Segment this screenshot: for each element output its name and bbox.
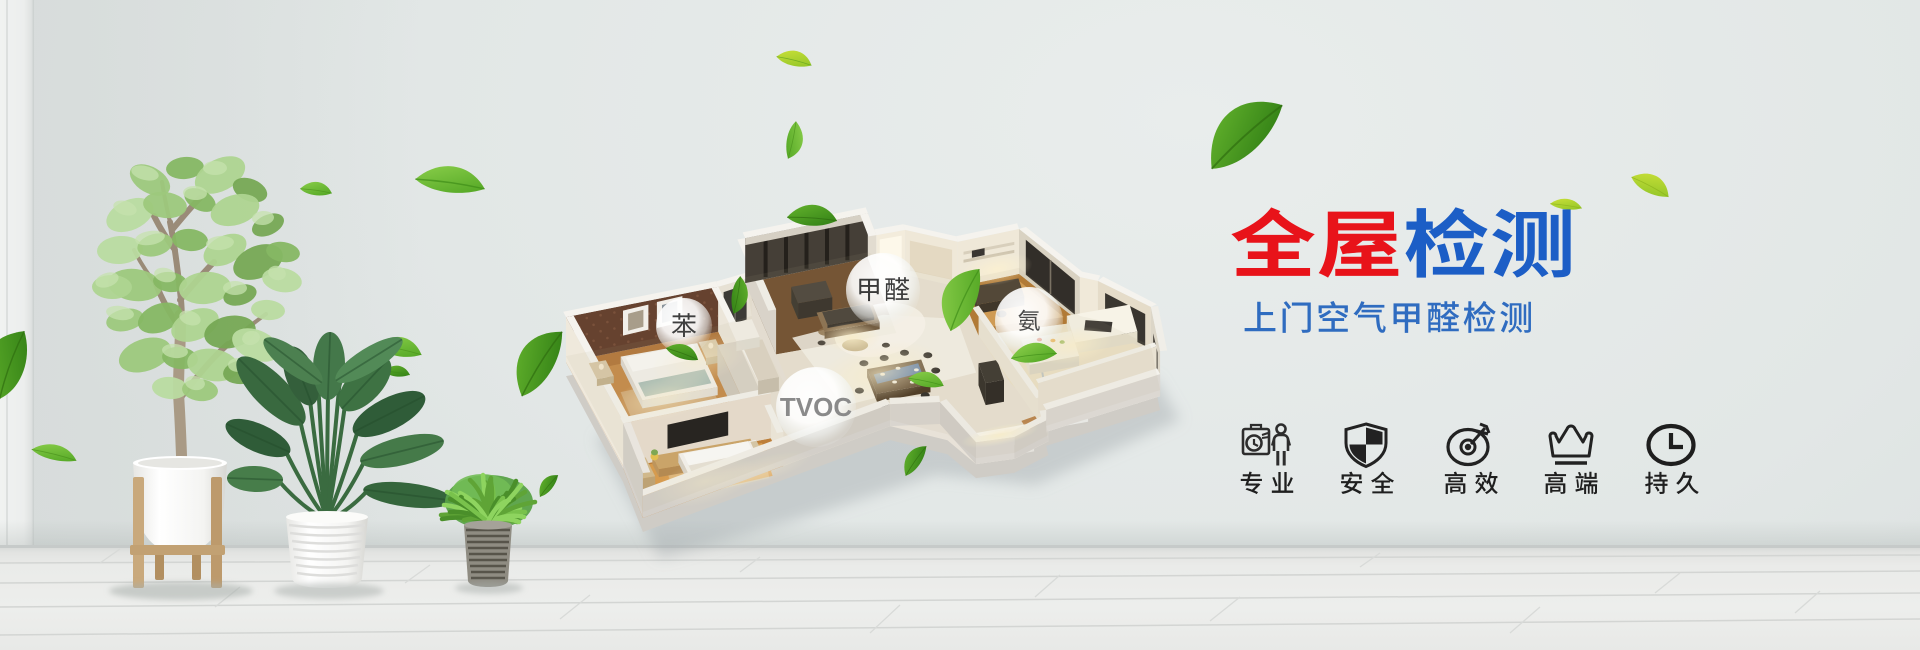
svg-text:TVOC: TVOC	[780, 392, 852, 422]
